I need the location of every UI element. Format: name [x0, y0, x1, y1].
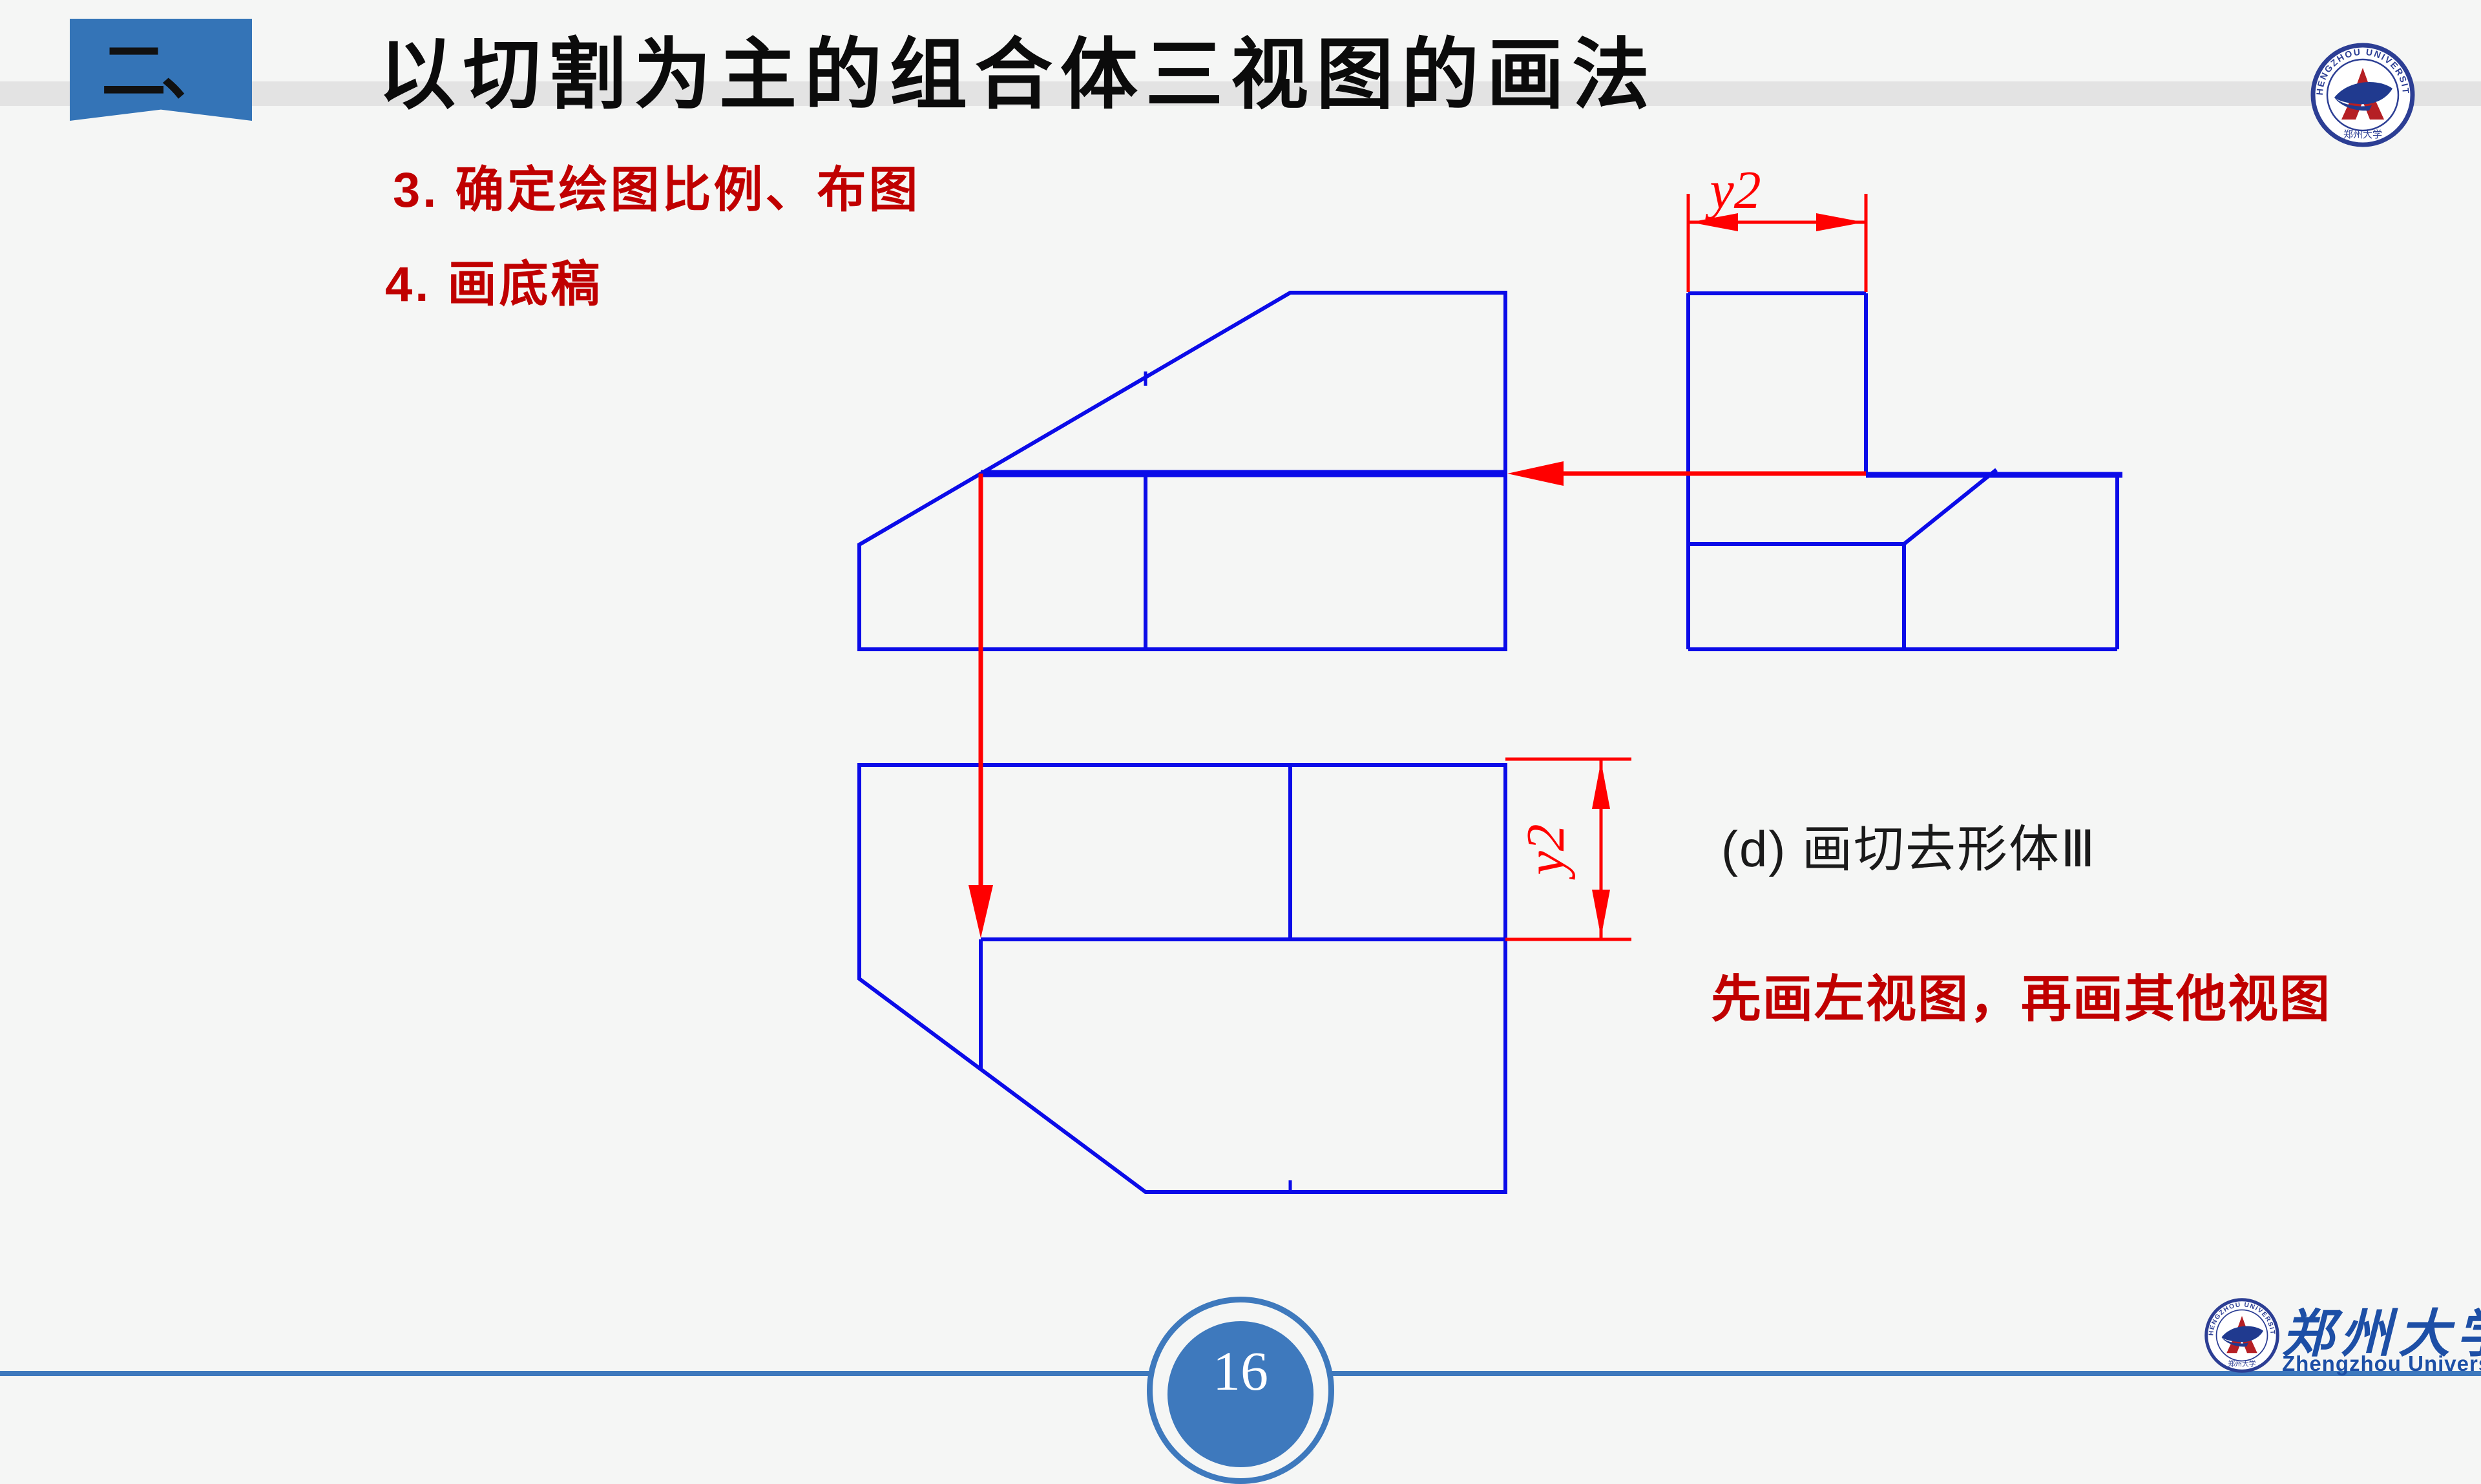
emblem-bottom-text: 郑州大学 — [2343, 129, 2382, 140]
dim-right-arrow-down — [1592, 890, 1610, 937]
top-outline — [859, 765, 1505, 1192]
page-number: 16 — [1167, 1339, 1314, 1403]
university-emblem-top: ZHENGZHOU UNIVERSITY 郑州大学 — [2308, 40, 2418, 150]
cad-drawing: y2 y2 — [0, 0, 2481, 1395]
dim-right-arrow-up — [1592, 761, 1610, 809]
y2-label-top: y2 — [1704, 160, 1761, 220]
dimension-top: y2 — [1688, 160, 1866, 292]
dim-top-arrow-right — [1816, 213, 1864, 231]
instruction-note: 先画左视图，再画其他视图 — [1711, 959, 2331, 1031]
y2-label-right: y2 — [1516, 824, 1576, 880]
projection-down-arrowhead — [968, 885, 993, 938]
dimension-right: y2 — [1505, 759, 1631, 939]
university-emblem-footer: ZHENGZHOU UNIVERSITY 郑州大学 — [2203, 1296, 2281, 1375]
projection-left-arrowhead — [1507, 461, 1564, 486]
slide: { "colors": { "background": "#f5f6f5", "… — [0, 0, 2481, 1395]
logo-english: Zhengzhou University — [2282, 1352, 2481, 1376]
side-chamfer — [1904, 470, 1996, 544]
front-view — [859, 293, 1505, 649]
top-view — [859, 765, 1505, 1192]
figure-caption: (d) 画切去形体Ⅲ — [1721, 809, 2097, 881]
emblem-bottom-text: 郑州大学 — [2228, 1359, 2256, 1368]
